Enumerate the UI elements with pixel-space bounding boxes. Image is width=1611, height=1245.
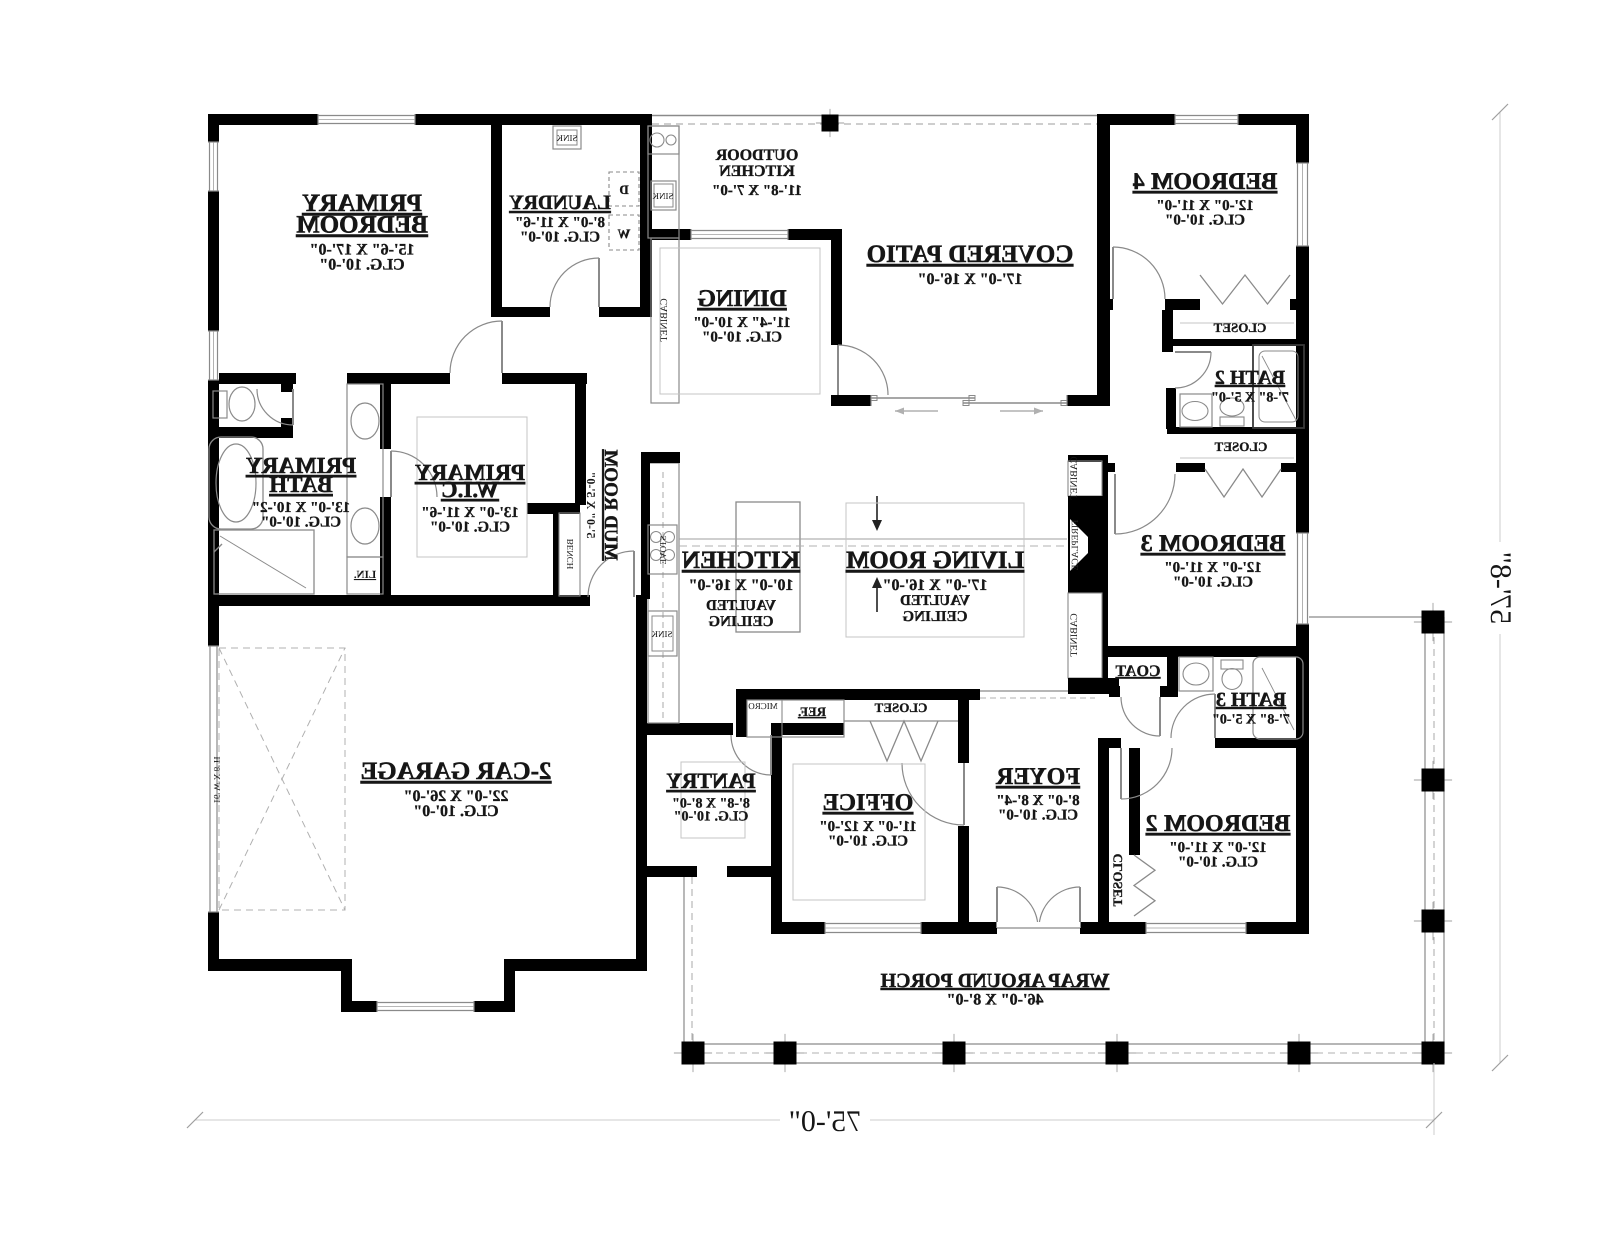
svg-text:FIREPLACE: FIREPLACE	[1071, 520, 1081, 571]
svg-text:SINK: SINK	[651, 629, 673, 639]
svg-text:7'-8" X 5'-0": 7'-8" X 5'-0"	[1212, 713, 1290, 728]
svg-text:CLG. 10'-0": CLG. 10'-0"	[674, 810, 749, 825]
svg-text:11'-8" X 7'-0": 11'-8" X 7'-0"	[712, 183, 802, 199]
svg-text:CEILING: CEILING	[902, 609, 967, 625]
svg-text:CLOSET: CLOSET	[874, 700, 927, 715]
svg-text:75'-0": 75'-0"	[789, 1105, 862, 1138]
svg-text:W.I.C: W.I.C	[441, 477, 499, 502]
svg-text:CEILING: CEILING	[708, 614, 773, 630]
svg-text:KITCHEN: KITCHEN	[682, 547, 800, 574]
svg-text:LIVING ROOM: LIVING ROOM	[846, 547, 1024, 574]
svg-text:10'-0" X 16'-0": 10'-0" X 16'-0"	[689, 577, 794, 594]
svg-text:SINK: SINK	[652, 191, 674, 201]
svg-text:CLOSET: CLOSET	[1214, 439, 1267, 454]
svg-text:CLOSET: CLOSET	[1213, 320, 1266, 335]
svg-text:CLG. 10'-0": CLG. 10'-0"	[261, 514, 341, 530]
svg-text:REF.: REF.	[798, 704, 826, 719]
svg-text:MICRO: MICRO	[748, 701, 778, 711]
svg-text:CABINET: CABINET	[1069, 456, 1080, 499]
svg-text:57'-8": 57'-8"	[1484, 552, 1517, 625]
svg-text:CLG. 10'-0": CLG. 10'-0"	[413, 803, 498, 820]
svg-text:CLOSET: CLOSET	[1110, 854, 1125, 907]
svg-text:VAULTED: VAULTED	[706, 598, 776, 614]
svg-text:WRAP AROUND PORCH: WRAP AROUND PORCH	[880, 970, 1109, 992]
svg-text:OFFICE: OFFICE	[823, 790, 914, 816]
svg-text:BEDROOM: BEDROOM	[296, 212, 428, 239]
svg-text:PANTRY: PANTRY	[666, 768, 755, 793]
svg-text:COAT: COAT	[1115, 663, 1160, 680]
svg-text:BEDROOM 3: BEDROOM 3	[1141, 531, 1286, 557]
svg-text:W: W	[618, 226, 631, 241]
svg-text:46'-0" X 8'-0": 46'-0" X 8'-0"	[947, 992, 1044, 1009]
svg-text:LIN.: LIN.	[354, 569, 377, 581]
svg-text:CLG. 10'-0": CLG. 10'-0"	[1165, 212, 1245, 228]
svg-text:2-CAR GARAGE: 2-CAR GARAGE	[361, 758, 552, 785]
svg-text:7'-8" X 5'-0": 7'-8" X 5'-0"	[1211, 391, 1289, 406]
svg-text:BEDROOM 4: BEDROOM 4	[1133, 169, 1278, 195]
svg-text:BATH: BATH	[269, 472, 333, 497]
svg-text:COVERED PATIO: COVERED PATIO	[867, 241, 1074, 268]
svg-text:D: D	[619, 182, 628, 197]
svg-text:CABINET: CABINET	[1069, 613, 1080, 656]
svg-text:BATH 2: BATH 2	[1215, 367, 1285, 389]
svg-text:BEDROOM 2: BEDROOM 2	[1146, 811, 1291, 837]
svg-text:BENCH: BENCH	[565, 539, 575, 570]
svg-text:CLG. 10'-0": CLG. 10'-0"	[520, 229, 600, 245]
svg-text:STOVE: STOVE	[658, 536, 668, 565]
svg-text:KITCHEN: KITCHEN	[719, 163, 795, 180]
svg-text:CLG. 10'-0": CLG. 10'-0"	[1173, 574, 1253, 590]
svg-text:CLG. 10'-0": CLG. 10'-0"	[998, 807, 1078, 823]
svg-text:16' W X 8' H: 16' W X 8' H	[212, 756, 222, 803]
svg-text:CLG. 10'-0": CLG. 10'-0"	[702, 329, 782, 345]
svg-text:OUTDOOR: OUTDOOR	[715, 147, 798, 164]
svg-text:CLG. 10'-0": CLG. 10'-0"	[828, 833, 908, 849]
svg-text:CLG. 10'-0": CLG. 10'-0"	[430, 519, 510, 535]
svg-text:CABINET: CABINET	[659, 298, 670, 341]
svg-text:17'-0" X 16'-0": 17'-0" X 16'-0"	[883, 577, 988, 594]
svg-text:CLG. 10'-0": CLG. 10'-0"	[1178, 854, 1258, 870]
svg-text:LAUNDRY: LAUNDRY	[509, 192, 611, 214]
svg-text:17'-0" X 16'-0": 17'-0" X 16'-0"	[918, 271, 1023, 288]
svg-text:VAULTED: VAULTED	[900, 593, 970, 609]
svg-text:FOYER: FOYER	[995, 764, 1080, 790]
svg-text:5'-0" X 5'-0": 5'-0" X 5'-0"	[584, 472, 598, 539]
svg-text:BATH 3: BATH 3	[1216, 689, 1286, 711]
svg-text:SINK: SINK	[556, 133, 578, 143]
svg-text:DINING: DINING	[697, 286, 787, 312]
svg-text:CLG. 10'-0": CLG. 10'-0"	[319, 257, 404, 274]
svg-text:MUD ROOM: MUD ROOM	[600, 449, 621, 560]
